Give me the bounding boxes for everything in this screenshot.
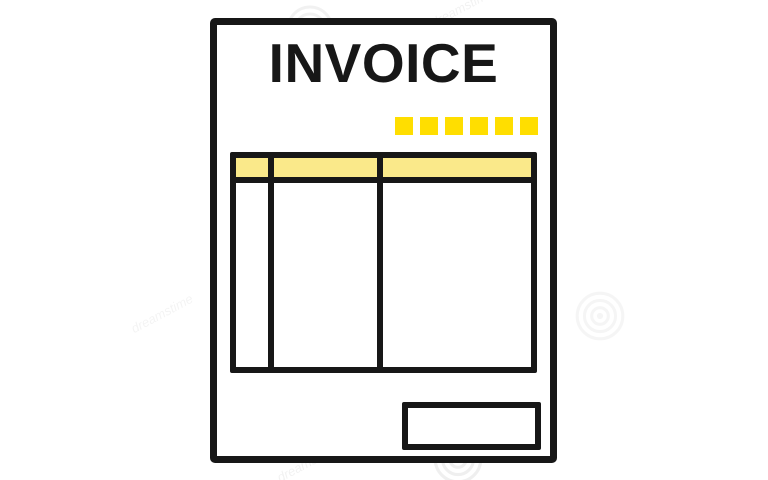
watermark-text: dreamstime <box>128 291 195 336</box>
table-header-cell <box>383 158 531 177</box>
total-box <box>402 402 541 450</box>
decor-square <box>395 117 413 135</box>
table-body-cell <box>236 183 268 367</box>
decor-squares-row <box>395 117 538 135</box>
decor-square <box>420 117 438 135</box>
table-body-cell <box>383 183 531 367</box>
watermark-spiral-icon <box>572 288 628 344</box>
decor-square <box>445 117 463 135</box>
table-header-cell <box>274 158 377 177</box>
invoice-table <box>230 152 537 373</box>
invoice-paper: INVOICE <box>210 18 557 463</box>
invoice-title: INVOICE <box>217 36 550 91</box>
table-body-cell <box>274 183 377 367</box>
decor-square <box>520 117 538 135</box>
decor-square <box>495 117 513 135</box>
decor-square <box>470 117 488 135</box>
illustration-canvas: dreamstime dreamstime dreamstime dreamst… <box>0 0 768 480</box>
table-header-cell <box>236 158 268 177</box>
